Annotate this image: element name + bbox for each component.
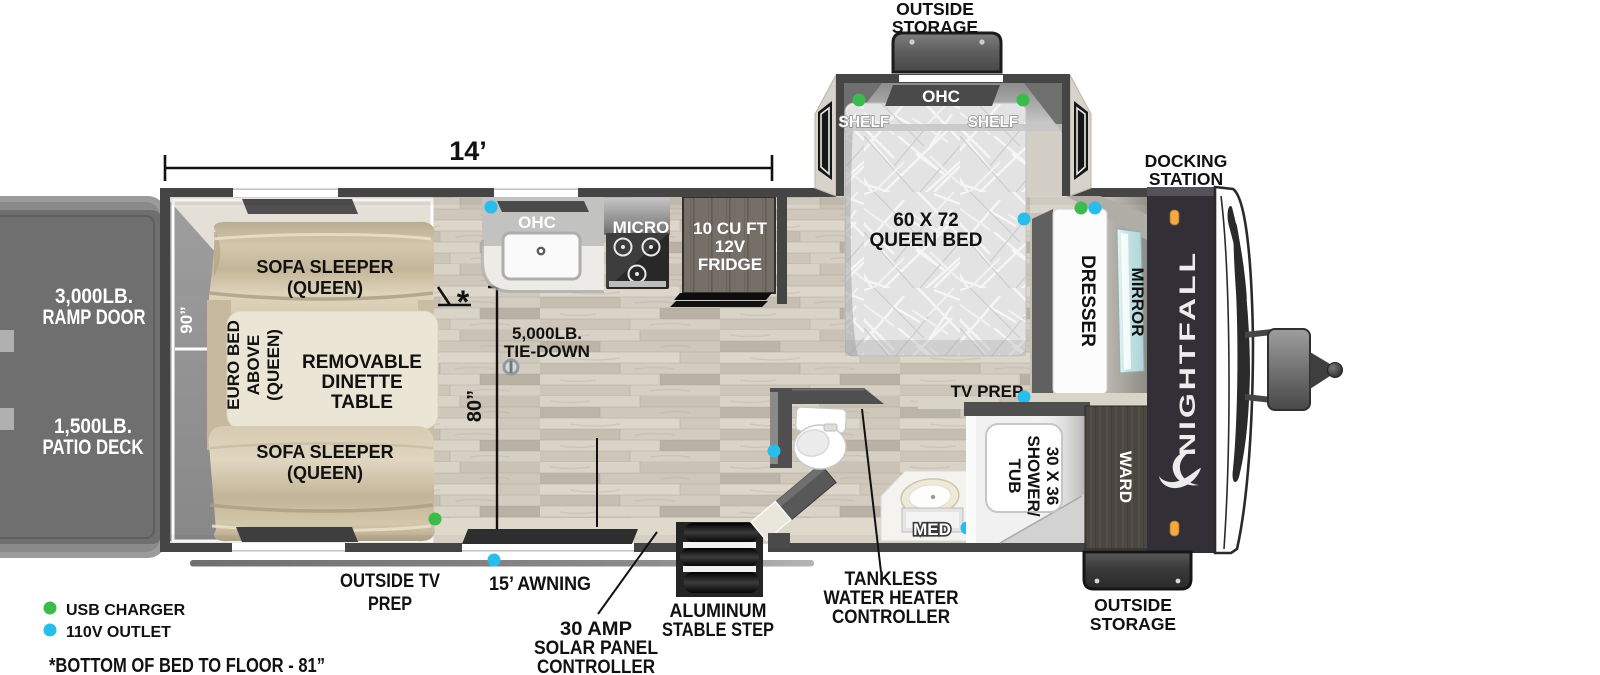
svg-text:CONTROLLER: CONTROLLER (537, 656, 655, 675)
svg-text:OHC: OHC (518, 213, 556, 232)
svg-text:30 X 36: 30 X 36 (1043, 447, 1062, 506)
svg-text:DINETTE: DINETTE (321, 372, 402, 393)
svg-text:1,500LB.: 1,500LB. (54, 415, 132, 438)
svg-text:15’ AWNING: 15’ AWNING (489, 573, 591, 595)
svg-text:USB CHARGER: USB CHARGER (66, 602, 186, 619)
svg-text:STABLE STEP: STABLE STEP (662, 619, 774, 641)
svg-text:(QUEEN): (QUEEN) (264, 329, 283, 401)
svg-text:MIRROR: MIRROR (1128, 268, 1147, 337)
svg-text:SHELF: SHELF (839, 114, 890, 131)
svg-text:PREP: PREP (368, 593, 412, 615)
svg-text:SHOWER/: SHOWER/ (1024, 435, 1043, 517)
svg-text:SOFA SLEEPER: SOFA SLEEPER (256, 442, 393, 462)
svg-text:EURO BED: EURO BED (224, 320, 243, 410)
svg-text:SOFA SLEEPER: SOFA SLEEPER (256, 257, 393, 277)
svg-text:110V OUTLET: 110V OUTLET (66, 624, 171, 641)
svg-text:12V: 12V (715, 237, 746, 256)
svg-text:STORAGE: STORAGE (1090, 614, 1176, 634)
svg-text:SHELF: SHELF (968, 114, 1019, 131)
svg-text:10 CU FT: 10 CU FT (693, 219, 767, 238)
svg-text:TIE-DOWN: TIE-DOWN (504, 342, 590, 361)
svg-text:(QUEEN): (QUEEN) (287, 463, 363, 483)
svg-text:DOCKING: DOCKING (1145, 151, 1228, 171)
svg-text:(QUEEN): (QUEEN) (287, 278, 363, 298)
svg-text:DRESSER: DRESSER (1077, 255, 1098, 347)
svg-text:STORAGE: STORAGE (892, 17, 978, 37)
svg-text:STATION: STATION (1149, 169, 1223, 189)
svg-text:ABOVE: ABOVE (244, 335, 263, 395)
svg-text:OHC: OHC (922, 87, 960, 106)
svg-text:60 X 72: 60 X 72 (893, 210, 959, 231)
svg-text:RAMP DOOR: RAMP DOOR (43, 306, 146, 329)
svg-text:FRIDGE: FRIDGE (698, 255, 762, 274)
svg-text:TV PREP: TV PREP (951, 382, 1024, 401)
svg-text:TUB: TUB (1005, 459, 1024, 494)
svg-text:TABLE: TABLE (331, 392, 393, 413)
svg-text:14’: 14’ (449, 136, 487, 166)
svg-text:CONTROLLER: CONTROLLER (832, 606, 950, 628)
svg-text:QUEEN BED: QUEEN BED (870, 230, 983, 251)
svg-text:NIGHTFALL: NIGHTFALL (1175, 250, 1200, 456)
svg-text:*BOTTOM OF BED TO FLOOR - 81”: *BOTTOM OF BED TO FLOOR - 81” (49, 655, 325, 675)
svg-text:PATIO DECK: PATIO DECK (43, 436, 144, 459)
svg-text:OUTSIDE TV: OUTSIDE TV (340, 570, 440, 592)
svg-text:5,000LB.: 5,000LB. (512, 324, 582, 343)
svg-text:90”: 90” (177, 306, 196, 333)
svg-text:*: * (457, 284, 470, 320)
svg-text:OUTSIDE: OUTSIDE (1094, 595, 1172, 615)
svg-text:WARD: WARD (1116, 451, 1135, 503)
svg-text:REMOVABLE: REMOVABLE (302, 352, 422, 373)
svg-text:80”: 80” (464, 390, 486, 422)
svg-text:MED: MED (913, 520, 951, 539)
svg-text:3,000LB.: 3,000LB. (55, 285, 133, 308)
